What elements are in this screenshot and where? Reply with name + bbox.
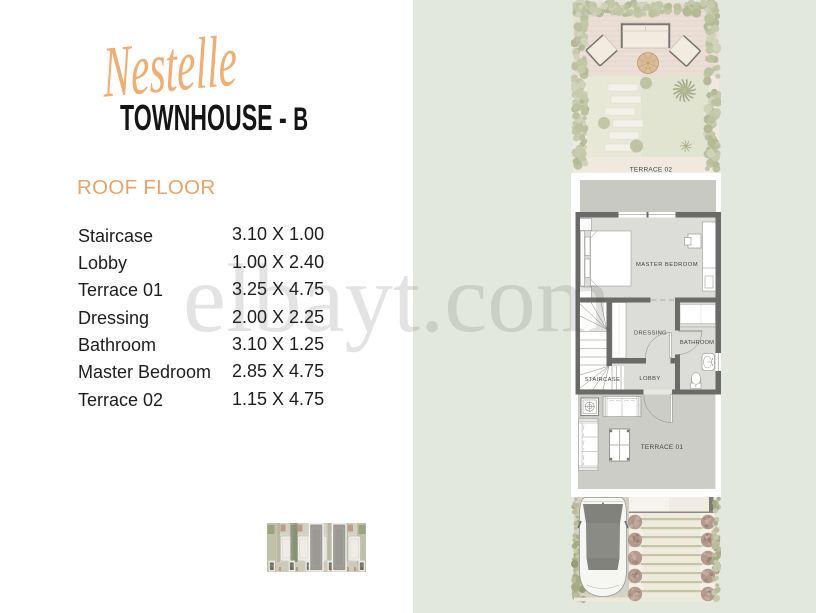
svg-text:STAIRCASE: STAIRCASE (585, 377, 621, 383)
svg-text:BATHROOM: BATHROOM (680, 340, 714, 346)
svg-text:TERRACE 02: TERRACE 02 (630, 167, 673, 174)
svg-text:DRESSING: DRESSING (634, 331, 667, 337)
svg-text:LOBBY: LOBBY (639, 376, 660, 382)
svg-text:TERRACE 01: TERRACE 01 (641, 444, 684, 451)
svg-text:MASTER BEDROOM: MASTER BEDROOM (636, 262, 698, 268)
